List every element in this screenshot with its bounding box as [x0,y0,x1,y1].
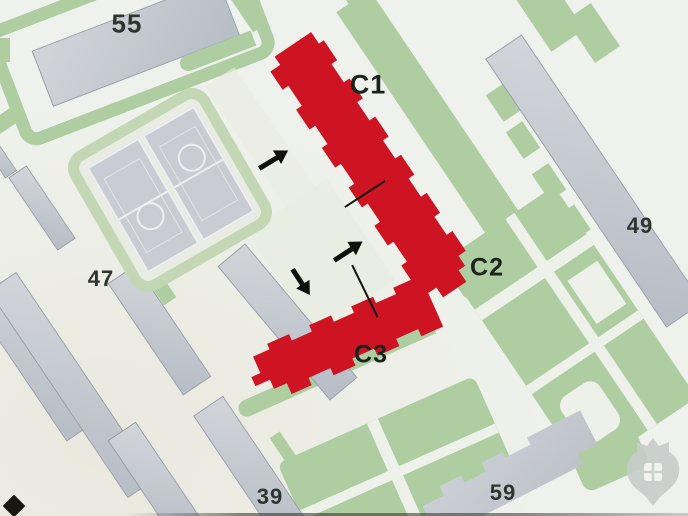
section-label-c2: C2 [470,254,504,283]
location-pin-house-logo-icon [624,435,682,509]
site-plan-map: 55 47 49 39 59 C1 C2 C3 [0,0,688,516]
house-number-55: 55 [112,9,143,40]
house-number-39: 39 [257,484,283,510]
house-number-59: 59 [490,480,516,506]
section-label-c1: C1 [350,70,387,101]
house-number-49: 49 [627,213,653,239]
house-number-47: 47 [88,266,114,292]
lawn-patch [0,38,10,62]
section-label-c3: C3 [354,341,388,370]
